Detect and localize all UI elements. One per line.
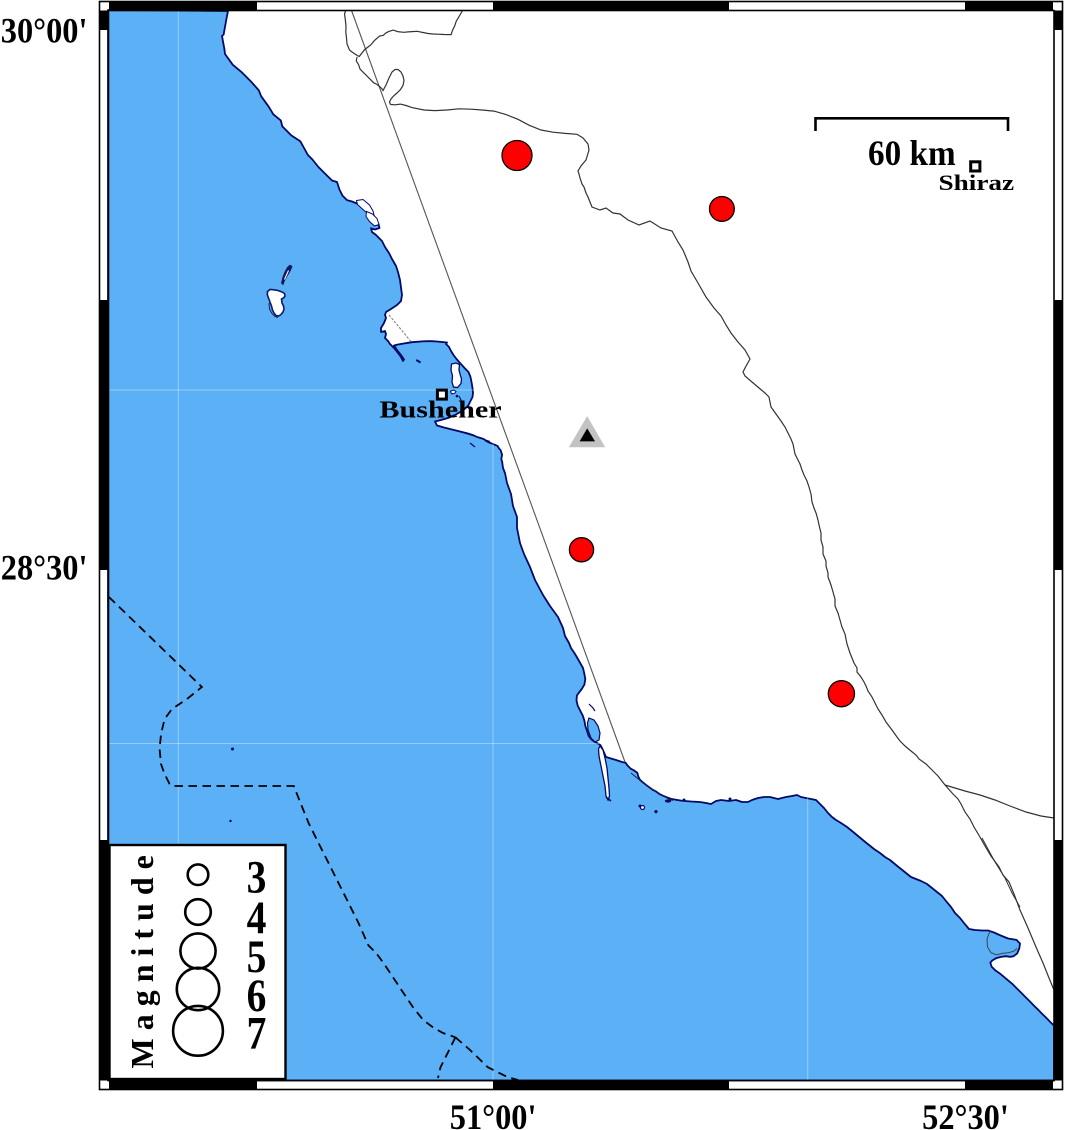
svg-text:30°00': 30°00' [1,11,88,51]
svg-text:51°00': 51°00' [450,1097,537,1130]
svg-text:Magnitude: Magnitude [124,847,160,1068]
svg-text:52°30': 52°30' [922,1097,1009,1130]
svg-text:Busheher: Busheher [379,396,501,423]
svg-text:28°30': 28°30' [1,548,88,588]
svg-text:7: 7 [247,1007,267,1059]
svg-text:60 km: 60 km [868,134,956,173]
svg-text:Shiraz: Shiraz [938,171,1014,195]
